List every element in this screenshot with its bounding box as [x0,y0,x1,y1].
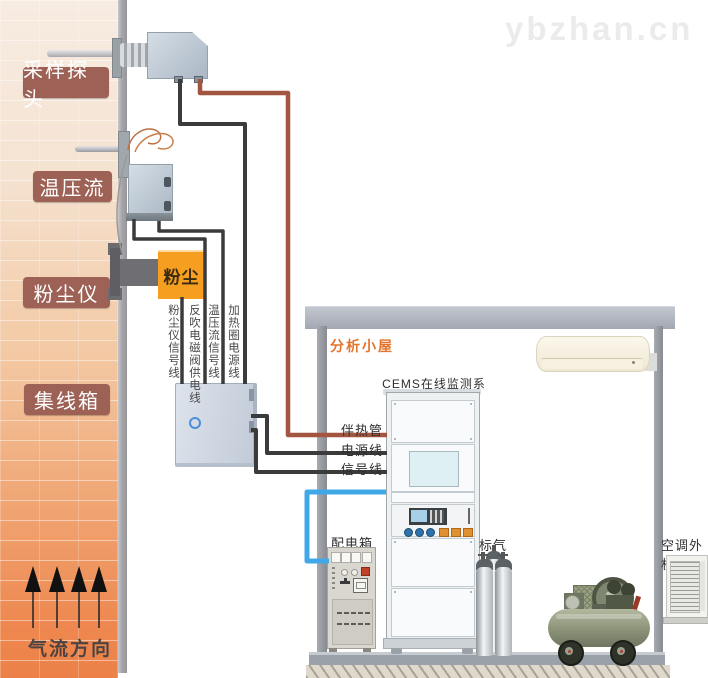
cable-blue-line [307,492,386,561]
cable-label-signal-line: 信号线 [341,459,383,478]
cable-label-heater-power: 加热圈电源线 [226,304,239,444]
cable-label-blowback-power: 反吹电磁阀供电线 [187,304,200,474]
cables-overlay [0,0,708,678]
cable-label-heat-trace: 伴热管 [341,420,383,439]
tpf-thin-cable [117,155,127,252]
cable-label-tpf-signal: 温压流信号线 [206,304,219,444]
tpf-wire-curl [135,133,173,152]
cable-label-dust-signal: 粉尘仪信号线 [166,304,179,444]
cable-label-power-line: 电源线 [341,440,383,459]
diagram-canvas: ybzhan.cn 采样探头 温压流 粉尘仪 集线箱 气流方向 分析小屋 CEM… [0,0,708,678]
airflow-arrows [25,566,107,628]
